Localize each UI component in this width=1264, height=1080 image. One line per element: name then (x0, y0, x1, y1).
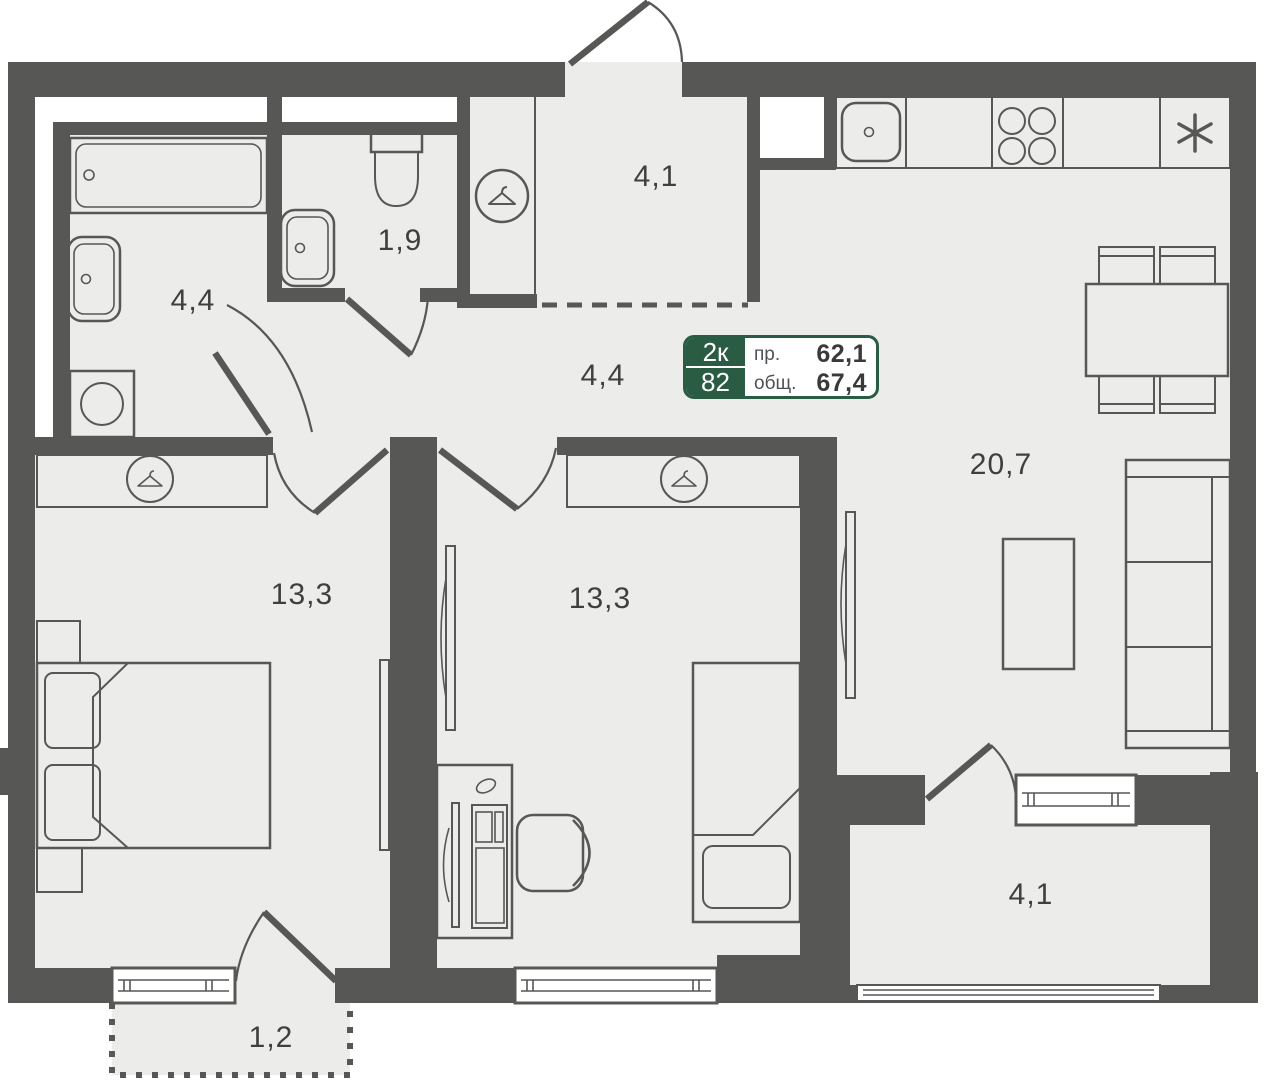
window-living-to-loggia (1016, 775, 1136, 825)
entry-zone-area-label: 4,1 (634, 160, 679, 193)
floor-plan: 4,4 1,9 4,1 4,4 20,7 13,3 13,3 4,1 1,2 (0, 0, 1264, 1080)
bedroom-1-area-label: 13,3 (271, 578, 333, 611)
floor-plan-page: 4,4 1,9 4,1 4,4 20,7 13,3 13,3 4,1 1,2 2… (0, 0, 1264, 1080)
apartment-info-badge: 2к 82 пр. 62,1 общ. 67,4 (683, 335, 879, 399)
floor-areas (35, 97, 1230, 1075)
badge-row-projected: пр. 62,1 (754, 340, 867, 369)
badge-green-section: 2к 82 (686, 338, 745, 396)
bedroom-2-door-opening (437, 437, 557, 455)
apartment-type-label: 2к (686, 338, 745, 366)
bedroom-1-door-opening (273, 437, 387, 455)
balcony-area-label: 1,2 (249, 1021, 294, 1054)
total-area-label: общ. (754, 373, 796, 395)
hallway-area-label: 4,4 (581, 359, 626, 392)
badge-row-total: общ. 67,4 (754, 369, 867, 398)
balcony-floor (112, 1003, 350, 1075)
bedroom-2-area-label: 13,3 (569, 582, 631, 615)
bathroom-area-label: 4,4 (171, 284, 216, 317)
entry-door-opening (565, 62, 682, 97)
kitchen-living-area-label: 20,7 (970, 448, 1032, 481)
entry-door (570, 2, 682, 64)
projected-area-value: 62,1 (816, 340, 867, 369)
total-area-value: 67,4 (816, 369, 867, 398)
loggia-door-opening (925, 775, 1016, 825)
window-loggia (857, 985, 1160, 1001)
balcony-door-opening (235, 968, 335, 1003)
toilet-area-label: 1,9 (378, 224, 423, 257)
window-bedroom-1 (112, 968, 235, 1003)
apartment-number-label: 82 (686, 366, 745, 396)
projected-area-label: пр. (754, 344, 780, 366)
loggia-area-label: 4,1 (1009, 878, 1054, 911)
window-bedroom-2 (515, 968, 717, 1003)
badge-areas-section: пр. 62,1 общ. 67,4 (745, 338, 876, 396)
